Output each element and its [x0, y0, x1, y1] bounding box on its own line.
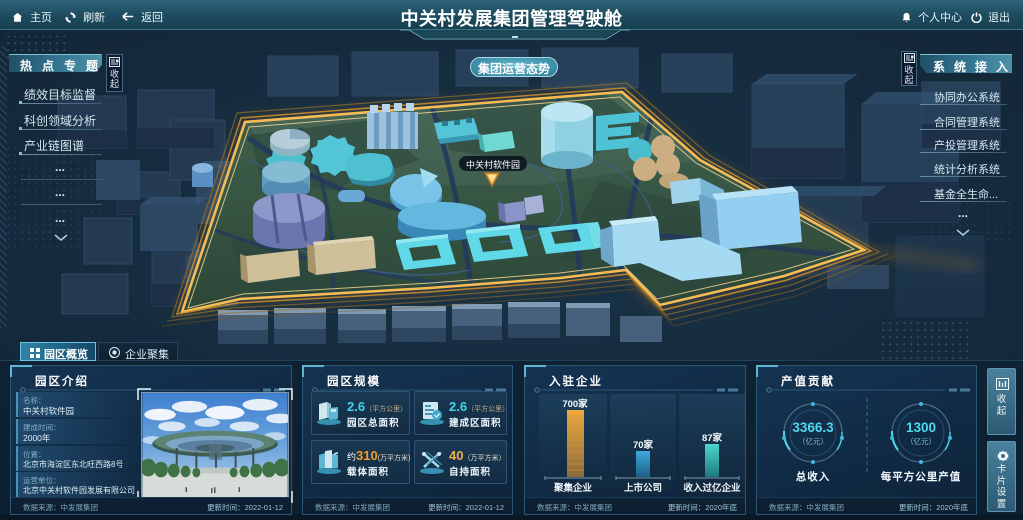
- svg-text:700家: 700家: [562, 398, 588, 410]
- svg-text:总收入: 总收入: [796, 470, 831, 483]
- svg-text:（亿元）: （亿元）: [906, 436, 936, 446]
- svg-text:1300: 1300: [906, 420, 936, 435]
- svg-text:87家: 87家: [702, 432, 723, 444]
- svg-text:70家: 70家: [633, 439, 654, 451]
- svg-text:（亿元）: （亿元）: [798, 436, 828, 446]
- svg-text:每平方公里产值: 每平方公里产值: [881, 470, 962, 483]
- svg-text:上市公司: 上市公司: [624, 482, 662, 494]
- svg-text:3366.3: 3366.3: [792, 420, 834, 435]
- svg-text:收入过亿企业: 收入过亿企业: [683, 482, 741, 494]
- svg-text:聚集企业: 聚集企业: [553, 482, 593, 494]
